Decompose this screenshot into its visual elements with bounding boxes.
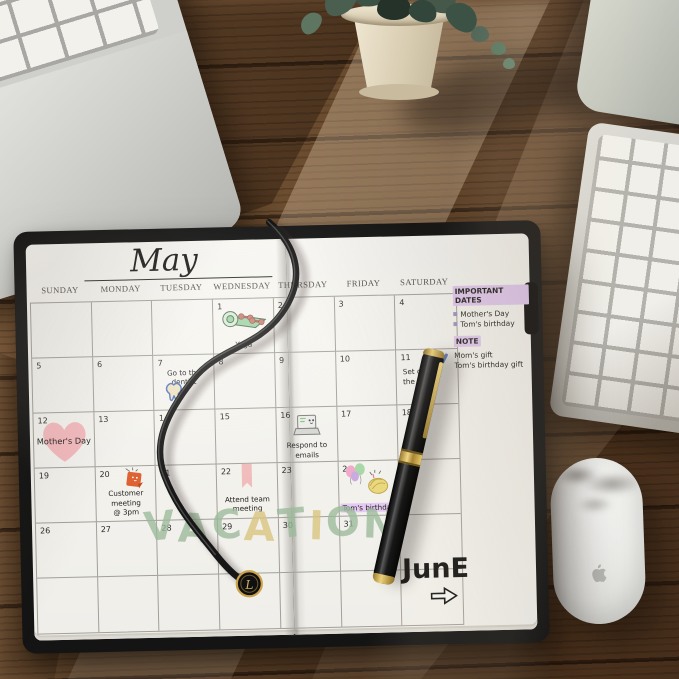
eucalyptus-leaf <box>471 26 489 42</box>
calendar-cell <box>92 301 154 357</box>
potted-plant <box>295 0 545 144</box>
vacation-letter: A <box>244 507 276 548</box>
day-header: TUESDAY <box>151 282 212 293</box>
arrow-right-icon <box>430 586 457 606</box>
day-header: WEDNESDAY <box>212 280 273 291</box>
date-number: 16 <box>280 411 290 420</box>
event-text: Respond to emails <box>277 440 337 460</box>
date-number: 15 <box>220 412 230 421</box>
date-number: 4 <box>399 298 404 307</box>
calendar-cell <box>219 573 281 629</box>
vacation-letter: V <box>142 505 177 548</box>
vacation-letter: I <box>308 506 324 546</box>
date-number: 2 <box>278 301 283 310</box>
date-number: 27 <box>101 525 111 534</box>
tooth-doodle-sticker <box>163 380 185 402</box>
monitor-stand <box>574 0 679 142</box>
calendar-cell: 6 <box>93 356 155 412</box>
eucalyptus-leaf <box>503 58 515 69</box>
calendar-cell <box>37 577 99 633</box>
calendar-cell: 14 <box>155 409 217 465</box>
event-text: Yoga <box>214 339 274 350</box>
calendar-cell: 19 <box>35 467 97 523</box>
calendar-cell-may-7: 7 Go to the dentist <box>154 355 216 411</box>
calendar-cell <box>152 300 214 356</box>
date-number: 21 <box>160 469 170 478</box>
calendar-cell: 8 <box>214 353 276 409</box>
date-number: 10 <box>340 354 350 363</box>
laptop-smiley-sticker <box>292 413 321 438</box>
leaf <box>377 0 411 20</box>
day-header: SATURDAY <box>394 276 455 287</box>
calendar-cell-may-1: 1 Yoga <box>213 298 275 354</box>
calendar-cell: 26 <box>36 522 98 578</box>
calendar-cell: 15 <box>215 408 277 464</box>
vacation-letter: T <box>276 503 307 545</box>
notes-panel: IMPORTANT DATES Mother's Day Tom's birth… <box>453 284 531 372</box>
calendar-cell <box>31 302 93 358</box>
event-text: the <box>403 377 415 387</box>
external-keyboard <box>549 121 679 446</box>
pen-gold-band <box>398 449 423 467</box>
balloons-cake-sticker <box>341 463 392 496</box>
apple-logo-icon <box>591 564 608 583</box>
important-dates-title: IMPORTANT DATES <box>453 284 529 306</box>
calendar-cell: 17 <box>337 405 399 461</box>
eucalyptus-leaf <box>491 42 506 55</box>
date-number: 9 <box>279 356 284 365</box>
date-number: 17 <box>341 409 351 418</box>
note-title: NOTE <box>454 335 481 347</box>
vacation-letter: A <box>177 509 209 550</box>
date-number: 8 <box>218 357 223 366</box>
calendar-cell <box>280 572 342 628</box>
day-header: FRIDAY <box>333 277 394 288</box>
date-number: 11 <box>400 353 410 362</box>
calendar-cell-may-12: 12 Mother's Day <box>33 412 95 468</box>
date-number: 22 <box>221 467 231 476</box>
keyboard-keys <box>561 134 679 434</box>
planner-notebook: May SUNDAY MONDAY TUESDAY WEDNESDAY THUR… <box>13 220 549 654</box>
vacation-letter: O <box>325 501 363 544</box>
leaf <box>296 8 325 38</box>
date-number: 5 <box>36 361 41 370</box>
date-number: 7 <box>158 359 163 368</box>
calendar-cell: 2 <box>274 297 336 353</box>
day-header: THURSDAY <box>272 279 333 290</box>
calendar-cell: 4 <box>395 294 457 350</box>
date-number: 20 <box>99 470 109 479</box>
calendar-cell: 5 <box>32 357 94 413</box>
important-item: Mother's Day <box>453 308 529 319</box>
day-header: MONDAY <box>90 283 151 294</box>
calendar-cell-may-16: 16 Respond to emails <box>276 407 338 463</box>
date-number: 26 <box>40 526 50 535</box>
pink-ribbon-sticker <box>240 464 255 491</box>
plant-pot-saucer <box>359 84 439 100</box>
event-text: Mother's Day <box>34 435 94 447</box>
date-number: 14 <box>159 414 169 423</box>
date-number: 6 <box>97 360 102 369</box>
yoga-mat-sticker <box>220 307 267 333</box>
date-number: 23 <box>282 466 292 475</box>
magic-mouse <box>549 456 647 625</box>
date-number: 19 <box>39 471 49 480</box>
important-item: Tom's birthday <box>453 319 529 330</box>
calendar-cell: 9 <box>275 352 337 408</box>
calendar-cell: 3 <box>334 295 396 351</box>
note-item: Mom's gift <box>454 349 530 360</box>
calendar-cell: 13 <box>94 411 156 467</box>
note-item: Tom's birthday gift <box>454 360 530 371</box>
calendar-cell: 10 <box>336 350 398 406</box>
calendar-cell <box>98 576 160 632</box>
month-title: May <box>74 241 255 281</box>
date-number: 13 <box>98 415 108 424</box>
date-number: 3 <box>338 300 343 309</box>
calendar-cell <box>159 574 221 630</box>
day-header: SUNDAY <box>30 284 91 295</box>
vacation-letter: C <box>210 504 243 547</box>
